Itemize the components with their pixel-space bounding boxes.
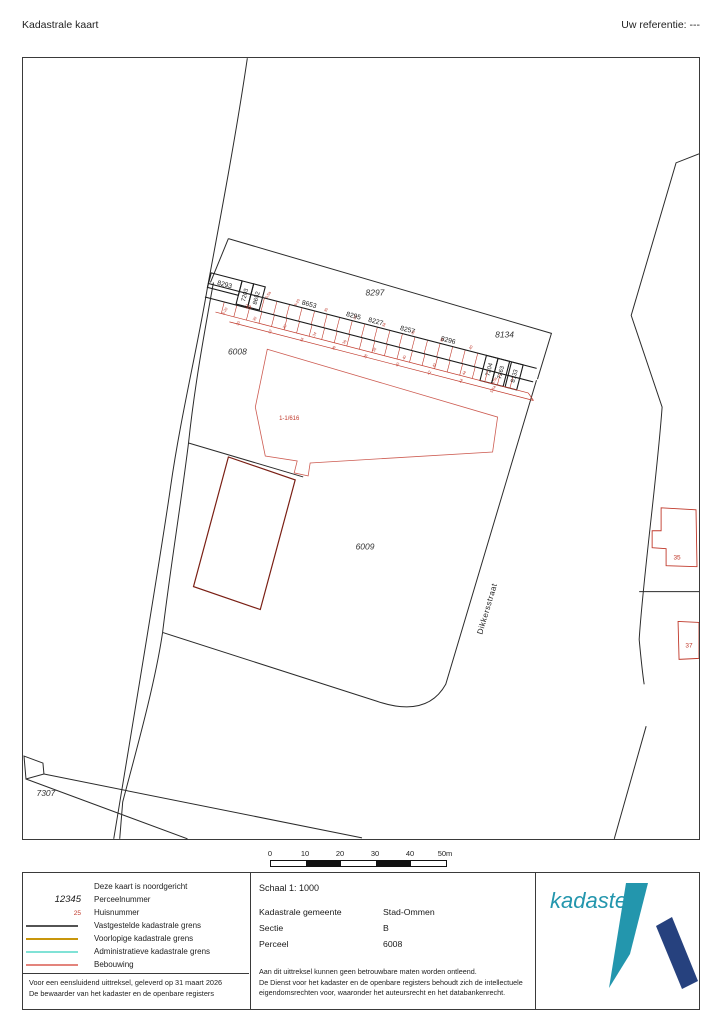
- right-parcel-west-edge: [631, 154, 699, 684]
- field-gemeente-label: Kadastrale gemeente: [259, 907, 383, 923]
- house-number-37: 37: [685, 642, 693, 649]
- house-number-35: 35: [673, 555, 681, 562]
- legend: Deze kaart is noordgericht 12345 Perceel…: [23, 880, 249, 971]
- disclaimer-line-2: De Dienst voor het kadaster en de openba…: [259, 978, 523, 989]
- page-title: Kadastrale kaart: [22, 19, 98, 31]
- svg-text:42: 42: [432, 363, 438, 369]
- legend-north-note: Deze kaart is noordgericht: [94, 882, 187, 891]
- svg-text:30: 30: [252, 316, 258, 322]
- parcel-label-6009: 6009: [356, 542, 375, 552]
- cadastral-extract-page: Kadastrale kaart Uw referentie: ---: [0, 0, 724, 1024]
- divider-legend-mid: [250, 873, 251, 1009]
- building-37: [678, 621, 699, 659]
- strip-parcel-8257: 8257: [399, 325, 416, 336]
- scale-tick-50m: 50m: [433, 849, 457, 858]
- strip-parcel-8293: 8293: [216, 280, 233, 291]
- buildings: [193, 349, 699, 659]
- info-box: Deze kaart is noordgericht 12345 Perceel…: [22, 872, 700, 1010]
- legend-footer-divider: [23, 973, 249, 974]
- parcel-boundaries: [24, 58, 699, 839]
- road-edge-east: [120, 282, 214, 838]
- footer-line-2: De bewaarder van het kadaster en de open…: [29, 988, 222, 999]
- cadastral-map: 5,5a8-203032343638408-203032343638404244…: [22, 57, 700, 840]
- field-sectie-value: B: [383, 923, 389, 939]
- svg-text:44: 44: [462, 370, 468, 376]
- legend-parcel-label: Perceelnummer: [94, 895, 150, 904]
- svg-text:5,5a: 5,5a: [490, 384, 498, 393]
- kadaster-logo-stroke-icon: [656, 917, 698, 989]
- svg-text:34: 34: [312, 332, 318, 338]
- map-canvas: 5,5a8-203032343638408-203032343638404244…: [23, 58, 699, 839]
- right-parcel-south-edge: [614, 726, 646, 839]
- reference-label: Uw referentie: ---: [621, 19, 700, 31]
- scale-tick-0: 0: [258, 849, 282, 858]
- legend-line-administratief-label: Administratieve kadastrale grens: [94, 947, 210, 956]
- boundary-6008-6009: [189, 443, 304, 477]
- legend-line-vastgesteld-icon: [23, 923, 81, 929]
- scale-text: Schaal 1: 1000: [259, 883, 319, 893]
- house-number-1-1-616: 1-1/616: [279, 416, 300, 422]
- svg-text:38: 38: [372, 347, 378, 353]
- scale-bar-segments: [270, 860, 447, 867]
- strip-west-corner: [210, 239, 228, 283]
- field-sectie-label: Sectie: [259, 923, 383, 939]
- legend-line-voorlopig-icon: [23, 936, 81, 942]
- svg-text:30: 30: [323, 307, 329, 313]
- parcel-fields: Kadastrale gemeente Stad-Ommen Sectie B …: [259, 907, 435, 955]
- road-diagonal-2: [44, 774, 362, 838]
- disclaimer-line-1: Aan dit uittreksel kunnen geen betrouwba…: [259, 967, 523, 978]
- svg-text:36: 36: [342, 339, 348, 345]
- svg-text:40: 40: [468, 345, 474, 351]
- legend-line-voorlopig-label: Voorlopige kadastrale grens: [94, 934, 193, 943]
- parcel-label-8297: 8297: [366, 287, 385, 297]
- footer-note: Voor een eensluidend uittreksel, gelever…: [29, 977, 222, 999]
- parcel-label-7307: 7307: [37, 788, 56, 798]
- legend-house-key: 25: [74, 910, 81, 917]
- house-number-3a: 3a: [245, 304, 252, 310]
- parcel-label-8134: 8134: [495, 329, 514, 339]
- street-label-dikkersstraat: Dikkersstraat: [475, 582, 499, 636]
- disclaimer: Aan dit uittreksel kunnen geen betrouwba…: [259, 967, 523, 999]
- field-gemeente-value: Stad-Ommen: [383, 907, 435, 923]
- svg-text:32: 32: [282, 324, 288, 330]
- parcel-7307-wedge: [24, 756, 44, 779]
- legend-house-label: Huisnummer: [94, 908, 139, 917]
- building-6009-large: [193, 457, 295, 610]
- kadaster-logo: kadaster: [538, 876, 700, 1008]
- field-perceel-value: 6008: [383, 939, 402, 955]
- svg-text:40: 40: [402, 355, 408, 361]
- strip-top-boundary: [228, 239, 551, 380]
- parcel-6009-south-east: [163, 380, 537, 707]
- footer-line-1: Voor een eensluidend uittreksel, gelever…: [29, 977, 222, 988]
- legend-parcel-key: 12345: [55, 894, 81, 905]
- disclaimer-line-3: eigendomsrechten voor, waaronder het aut…: [259, 988, 523, 999]
- strip-parcel-8653: 8653: [301, 300, 318, 311]
- parcel-label-6008: 6008: [228, 346, 247, 356]
- scale-tick-40: 40: [398, 849, 422, 858]
- divider-mid-logo: [535, 873, 536, 1009]
- strip-parcel-8227: 8227: [367, 317, 384, 328]
- field-perceel-label: Perceel: [259, 939, 383, 955]
- scale-tick-10: 10: [293, 849, 317, 858]
- legend-line-bebouwing-icon: [23, 962, 81, 968]
- road-edge-west: [114, 58, 248, 839]
- strip-parcel-8296: 8296: [440, 336, 457, 347]
- scale-tick-30: 30: [363, 849, 387, 858]
- legend-line-vastgesteld-label: Vastgestelde kadastrale grens: [94, 921, 201, 930]
- scale-tick-20: 20: [328, 849, 352, 858]
- legend-line-administratief-icon: [23, 949, 81, 955]
- legend-line-bebouwing-label: Bebouwing: [94, 960, 134, 969]
